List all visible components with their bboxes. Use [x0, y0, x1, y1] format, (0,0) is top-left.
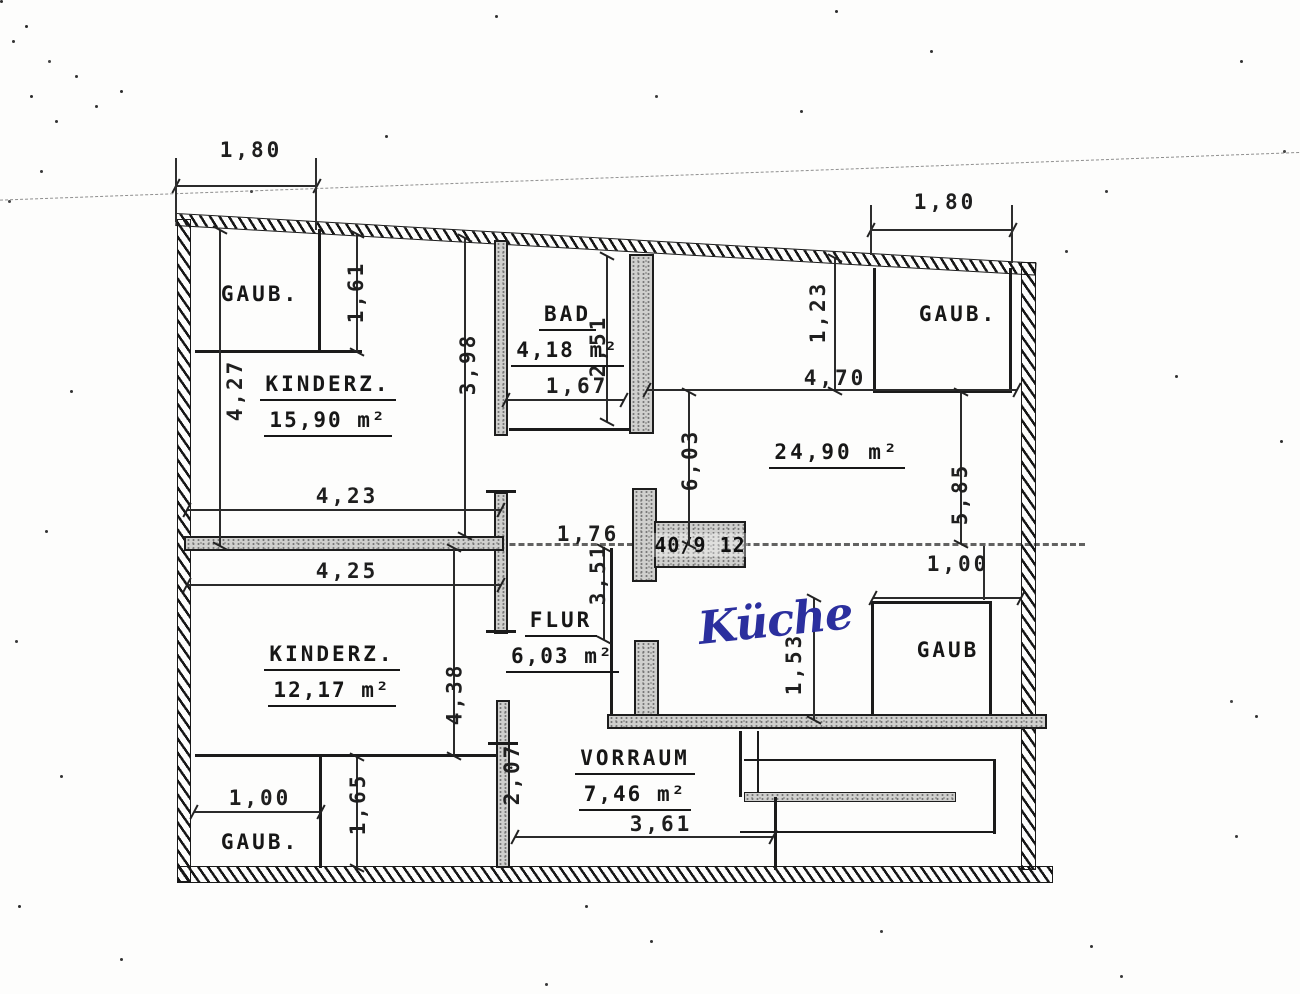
room-label-kinderz-bottom: KINDERZ. 12,17 m² [262, 642, 402, 707]
room-label-gaub-mid-right: GAUB [898, 638, 998, 665]
dim-1-80-top-right: 1,80 [890, 190, 1000, 214]
room-label-flur: FLUR 6,03 m² [506, 608, 616, 673]
room-name: VORRAUM [575, 746, 695, 775]
room-name: KINDERZ. [260, 372, 395, 401]
room-area: 7,46 m² [579, 782, 692, 811]
dim-2-07: 2,07 [500, 738, 524, 810]
room-label-24-90: 24,90 m² [762, 440, 912, 469]
room-label-vorraum: VORRAUM 7,46 m² [565, 746, 705, 811]
room-name: FLUR [525, 608, 598, 637]
stair-wall-v2 [757, 731, 759, 797]
scan-noise-specks [0, 0, 3, 3]
room-name: KINDERZ. [264, 642, 399, 671]
dim-1-61: 1,61 [344, 256, 368, 328]
dim-1-00-right: 1,00 [908, 552, 1008, 576]
dimline-3-61 [515, 836, 773, 838]
room-label-bad: BAD 4,18 m² [510, 302, 625, 367]
dim-1-67: 1,67 [522, 374, 632, 398]
room-area: 24,90 m² [769, 440, 904, 469]
stair-line-top [744, 759, 996, 761]
ext-line [870, 205, 872, 255]
room-area: 4,18 m² [511, 338, 624, 367]
shaft-wall-lower [634, 640, 659, 722]
dim-1-80-top-left: 1,80 [196, 138, 306, 162]
room-name: GAUB. [914, 302, 1002, 329]
dim-4-70: 4,70 [780, 366, 890, 390]
dimline-1-80-top-right [871, 229, 1013, 231]
dim-4-23: 4,23 [292, 484, 402, 508]
wall-gaub-top-right-right-side [1009, 268, 1012, 393]
stair-line-bottom [740, 831, 996, 833]
dim-4-27: 4,27 [223, 345, 247, 435]
dim-1-23: 1,23 [806, 272, 830, 352]
chimney-box: 40/9 12 [654, 521, 746, 568]
dim-3-98: 3,98 [456, 324, 480, 404]
chimney-label: 40/9 12 [652, 533, 747, 557]
dimline-1-80-top-left [176, 185, 317, 187]
room-label-kinderz-top: KINDERZ. 15,90 m² [258, 372, 398, 437]
wall-gaub-mid-right-top [871, 601, 992, 604]
room-label-gaub-bottom-left: GAUB. [205, 830, 315, 857]
room-name: GAUB [912, 638, 985, 665]
wall-gaub-mid-right-left-side [871, 601, 874, 720]
ext-line [1011, 205, 1013, 263]
room-label-gaub-top-left: GAUB. [200, 282, 320, 309]
dimline-4-23 [187, 509, 501, 511]
room-name: GAUB. [216, 830, 304, 857]
room-area: 15,90 m² [264, 408, 391, 437]
floor-plan-scan: 40/9 12 1,80 1,80 1 [0, 0, 1300, 994]
dim-6-03: 6,03 [678, 415, 702, 505]
dim-1-65: 1,65 [346, 766, 370, 842]
room-name: GAUB. [216, 282, 304, 309]
wall-right [1021, 262, 1036, 870]
stair-wall-v1 [739, 731, 742, 797]
shaft-wall-upper [629, 254, 654, 434]
stair-wall-v4 [993, 759, 996, 834]
dimline-4-27 [219, 230, 221, 546]
dim-3-51: 3,51 [586, 538, 610, 610]
dim-3-61: 3,61 [606, 812, 716, 836]
dim-4-25: 4,25 [292, 559, 402, 583]
room-label-gaub-top-right: GAUB. [903, 302, 1013, 329]
wall-bottom [177, 866, 1053, 883]
dim-5-85: 5,85 [948, 449, 972, 539]
room-area: 6,03 m² [506, 644, 619, 673]
scan-artifact-line [0, 151, 1300, 201]
ext-line [175, 158, 177, 222]
wall-mid-t-cap-top [486, 490, 516, 493]
dim-1-00-gaub: 1,00 [210, 786, 310, 810]
wall-bad-bottom [509, 428, 631, 431]
room-area: 12,17 m² [268, 678, 395, 707]
dimline-1-00-right [873, 597, 1021, 599]
dim-4-38: 4,38 [443, 652, 467, 737]
wall-vorraum-top [607, 714, 1047, 729]
room-label-kueche-handwritten: Küche [696, 586, 855, 655]
room-name: BAD [539, 302, 596, 331]
dimline-1-00-gaub [194, 811, 321, 813]
ext-line [315, 158, 317, 230]
